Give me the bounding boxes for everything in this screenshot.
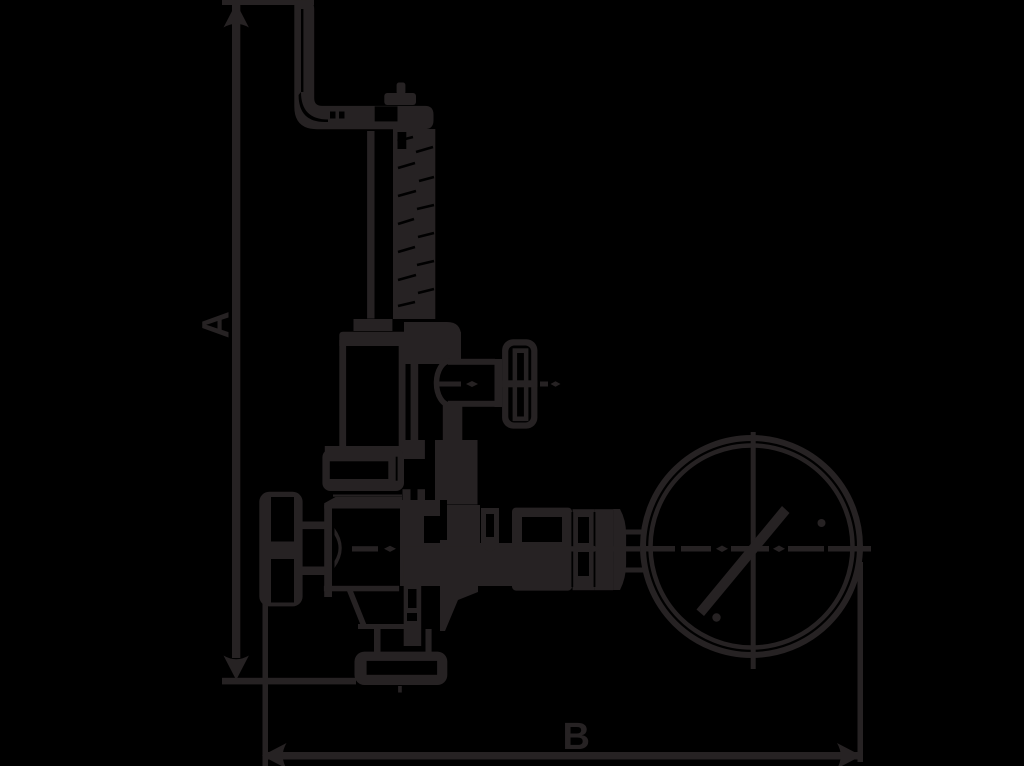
svg-text:B: B <box>563 716 590 758</box>
svg-text:A: A <box>196 311 238 338</box>
